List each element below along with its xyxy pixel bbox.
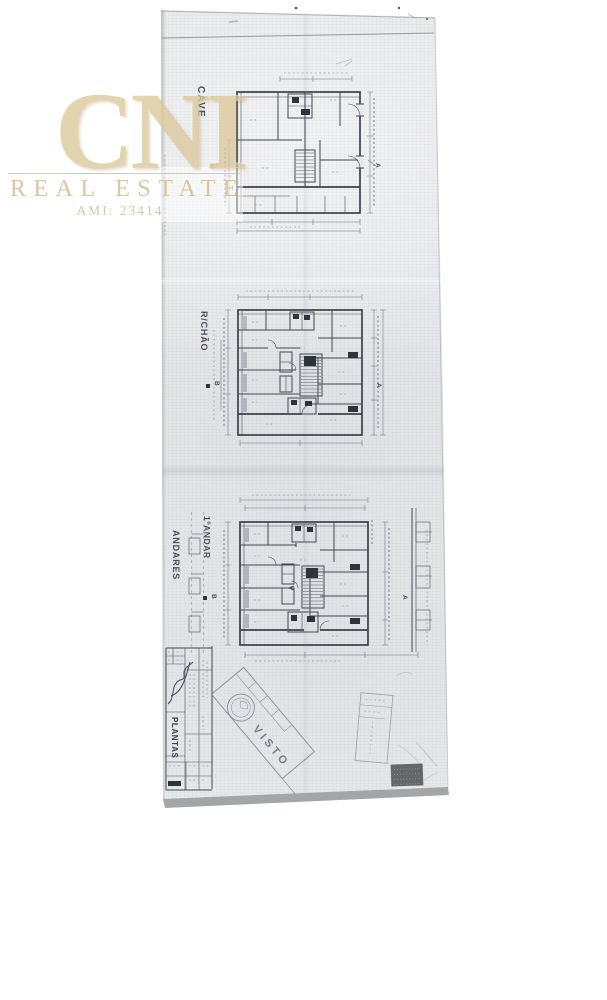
signature-scribble [168,662,193,704]
plan-rchao-drawing: A B [206,291,386,446]
section-marker-a-andares: A [401,595,408,600]
title-block-label-plantas: PLANTAS [170,717,179,758]
plan-cave-drawing: A [225,59,381,234]
visto-stamp: VISTO [212,667,328,794]
section-marker-a-rchao: A [375,383,382,388]
section-marker-b-andares: B [210,594,217,599]
floorplan-linework: A [0,0,607,1000]
plan-label-andares: ANDARES [171,530,181,580]
secondary-stamp [355,693,393,764]
scale-bar [168,781,181,786]
section-marker-a-cave: A [374,163,381,168]
plan-label-1andar: 1ºANDAR [202,516,212,559]
plan-andares-drawing: A B [189,495,432,661]
plan-label-cave: CAVE [195,86,206,118]
scanned-floorplan-page: A [0,0,607,1000]
embossed-seal [391,763,424,786]
plan-label-rchao: R/CHÃO [199,311,209,351]
section-marker-b-rchao: B [213,381,220,386]
